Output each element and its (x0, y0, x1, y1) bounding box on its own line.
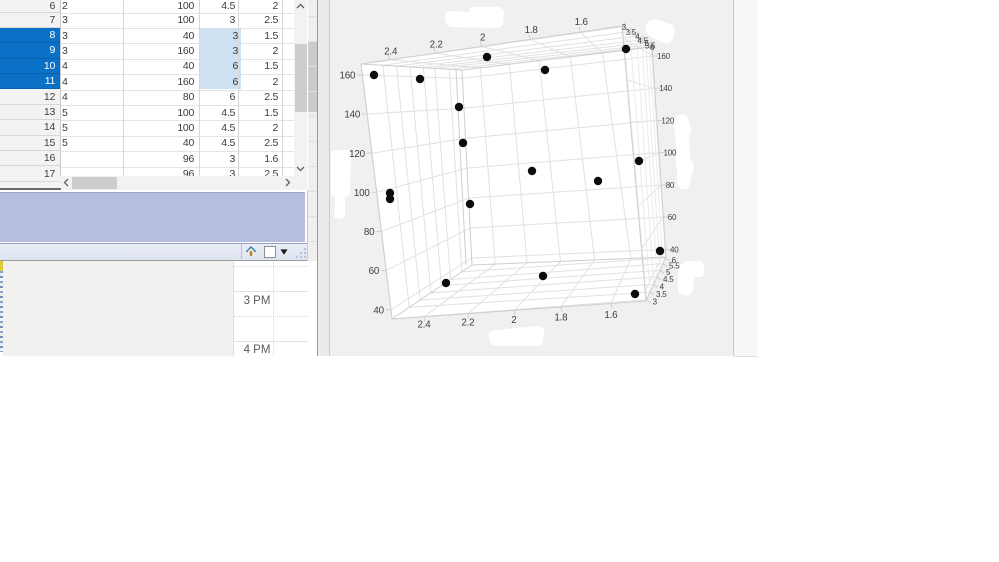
svg-text:140: 140 (659, 84, 672, 93)
svg-text:1.6: 1.6 (575, 17, 589, 28)
svg-text:1.8: 1.8 (525, 25, 539, 36)
svg-text:2.4: 2.4 (384, 47, 398, 58)
svg-text:80: 80 (364, 227, 375, 238)
svg-text:120: 120 (661, 117, 674, 126)
svg-text:2: 2 (480, 32, 485, 43)
svg-text:160: 160 (657, 52, 670, 61)
svg-text:6: 6 (672, 256, 677, 265)
svg-text:1.6: 1.6 (604, 310, 618, 321)
svg-text:2.2: 2.2 (430, 40, 443, 51)
svg-text:140: 140 (344, 110, 360, 121)
svg-text:40: 40 (670, 245, 679, 254)
svg-text:120: 120 (349, 149, 365, 160)
svg-text:100: 100 (664, 149, 677, 158)
svg-text:2.2: 2.2 (461, 317, 474, 328)
svg-text:3.5: 3.5 (656, 290, 667, 299)
svg-text:60: 60 (668, 213, 677, 222)
svg-text:2: 2 (511, 315, 516, 326)
svg-text:60: 60 (369, 266, 380, 277)
svg-text:1.8: 1.8 (554, 313, 568, 324)
svg-text:6: 6 (650, 43, 655, 52)
svg-text:80: 80 (666, 181, 675, 190)
svg-text:100: 100 (354, 188, 370, 199)
svg-text:2.4: 2.4 (417, 320, 431, 331)
svg-text:40: 40 (373, 305, 384, 316)
svg-text:160: 160 (340, 71, 356, 82)
